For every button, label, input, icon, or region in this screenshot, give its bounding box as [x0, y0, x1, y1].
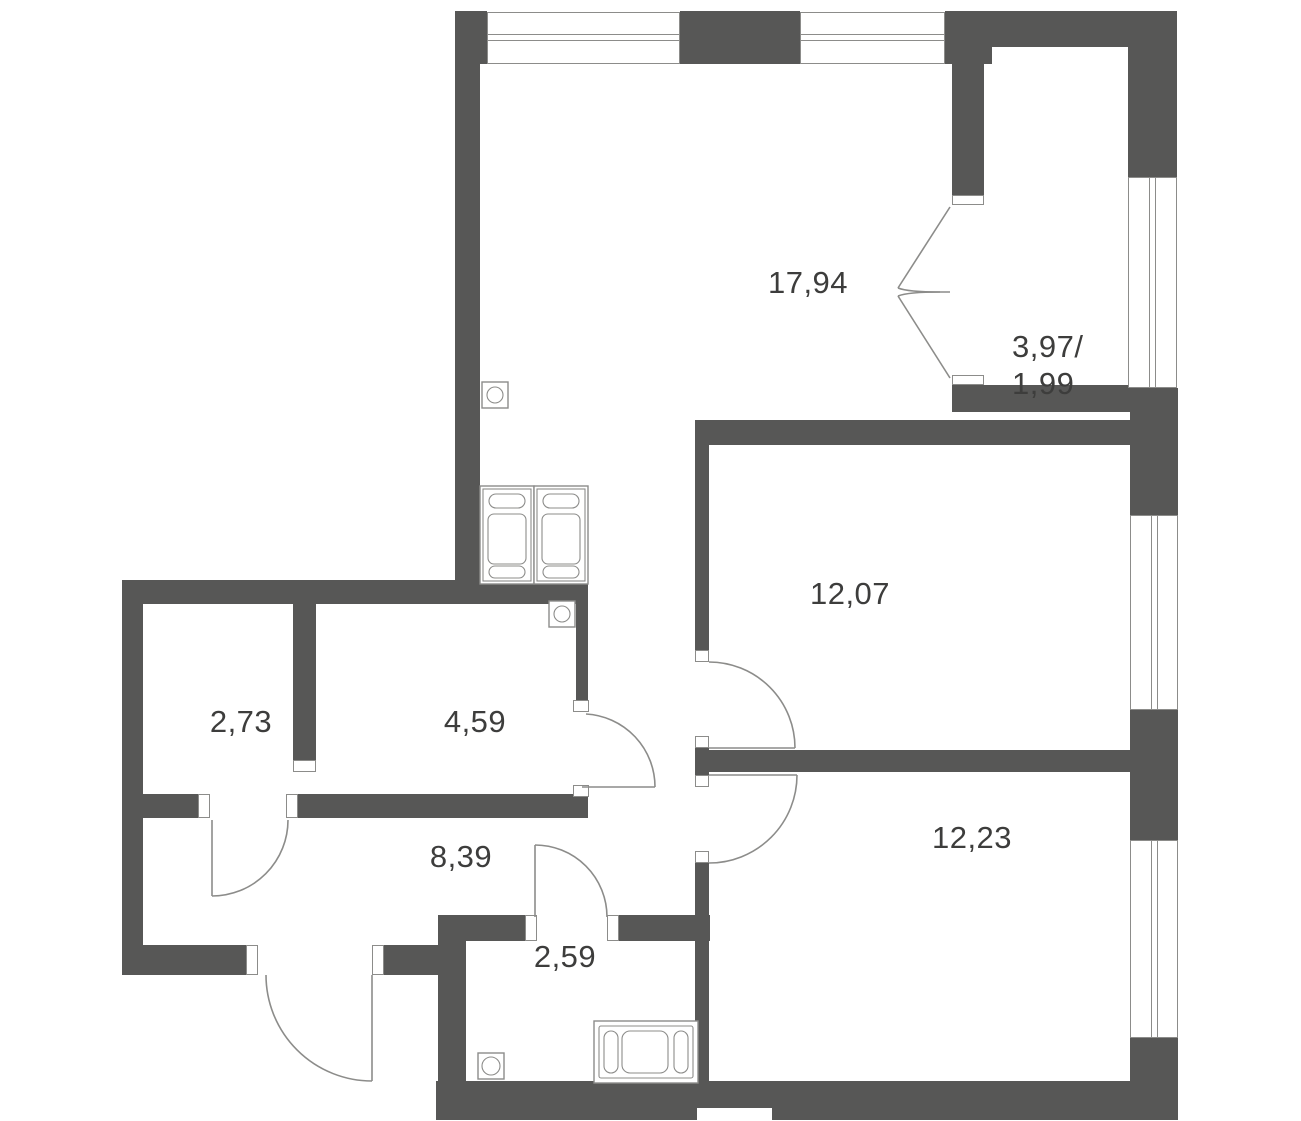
- room-area-label-hallway: 8,39: [430, 839, 492, 875]
- bathroom-door-swing: [535, 845, 607, 917]
- window: [1130, 840, 1178, 1038]
- bedroom-1-door-swing: [709, 662, 795, 748]
- wall-segment: [372, 945, 466, 975]
- kitchen-appliance-block: [480, 486, 588, 584]
- door-jamb: [695, 650, 709, 662]
- wall-segment: [695, 445, 709, 660]
- door-jamb: [573, 700, 589, 712]
- window: [487, 12, 680, 64]
- wall-segment: [695, 863, 709, 1081]
- wall-segment: [695, 420, 1135, 445]
- ventilation-shaft-icon: [482, 382, 508, 408]
- door-jamb: [695, 736, 709, 748]
- door-jamb: [246, 945, 258, 975]
- door-jamb: [695, 775, 709, 787]
- door-jamb: [952, 375, 984, 385]
- balcony-area-line1: 3,97/: [1012, 328, 1083, 365]
- wall-segment: [1130, 710, 1178, 840]
- wall-segment: [607, 915, 710, 941]
- door-jamb: [607, 915, 619, 941]
- wall-segment: [288, 794, 588, 818]
- wall-segment: [438, 915, 537, 941]
- wall-segment: [436, 1108, 697, 1120]
- bedroom-2-door-swing: [709, 775, 797, 863]
- wall-segment: [455, 11, 480, 604]
- window: [1130, 515, 1178, 710]
- wall-segment: [122, 794, 210, 818]
- wall-segment: [122, 580, 588, 604]
- room-area-label-bathroom: 2,59: [534, 939, 596, 975]
- door-jamb: [372, 945, 384, 975]
- storage-door-swing: [212, 820, 288, 896]
- door-jamb: [952, 195, 984, 205]
- wall-segment: [122, 580, 143, 975]
- door-jamb: [695, 851, 709, 863]
- window: [1128, 177, 1177, 388]
- wall-segment: [1130, 388, 1178, 515]
- room-area-label-bedroom-2: 12,23: [932, 820, 1012, 856]
- kitchen-door-swing: [582, 714, 655, 787]
- door-jamb: [293, 760, 316, 772]
- bathtub-icon: [594, 1021, 698, 1083]
- washbasin-icon: [478, 1053, 504, 1079]
- room-area-label-balcony: 3,97/ 1,99: [1012, 328, 1083, 402]
- door-jamb: [573, 785, 589, 797]
- floor-plan: 17,94 3,97/ 1,99 12,07 4,59 2,73 8,39 2,…: [0, 0, 1301, 1121]
- wall-segment: [952, 42, 984, 200]
- ventilation-shaft-icon: [549, 601, 575, 627]
- entrance-door-swing: [266, 975, 372, 1081]
- room-area-label-storage: 2,73: [210, 704, 272, 740]
- wall-segment: [1128, 11, 1177, 177]
- door-jamb: [525, 915, 537, 941]
- balcony-area-line2: 1,99: [1012, 365, 1083, 402]
- wall-segment: [680, 11, 800, 64]
- wall-segment: [436, 1081, 1178, 1108]
- window: [800, 12, 945, 64]
- room-area-label-kitchen-niche: 4,59: [444, 704, 506, 740]
- wall-segment: [695, 750, 1132, 772]
- wall-segment: [772, 1108, 1178, 1120]
- room-area-label-bedroom-1: 12,07: [810, 576, 890, 612]
- wall-segment: [293, 604, 316, 772]
- door-jamb: [286, 794, 298, 818]
- balcony-french-door: [898, 207, 950, 378]
- door-jamb: [198, 794, 210, 818]
- wall-segment: [576, 580, 588, 712]
- room-area-label-living-room: 17,94: [768, 265, 848, 301]
